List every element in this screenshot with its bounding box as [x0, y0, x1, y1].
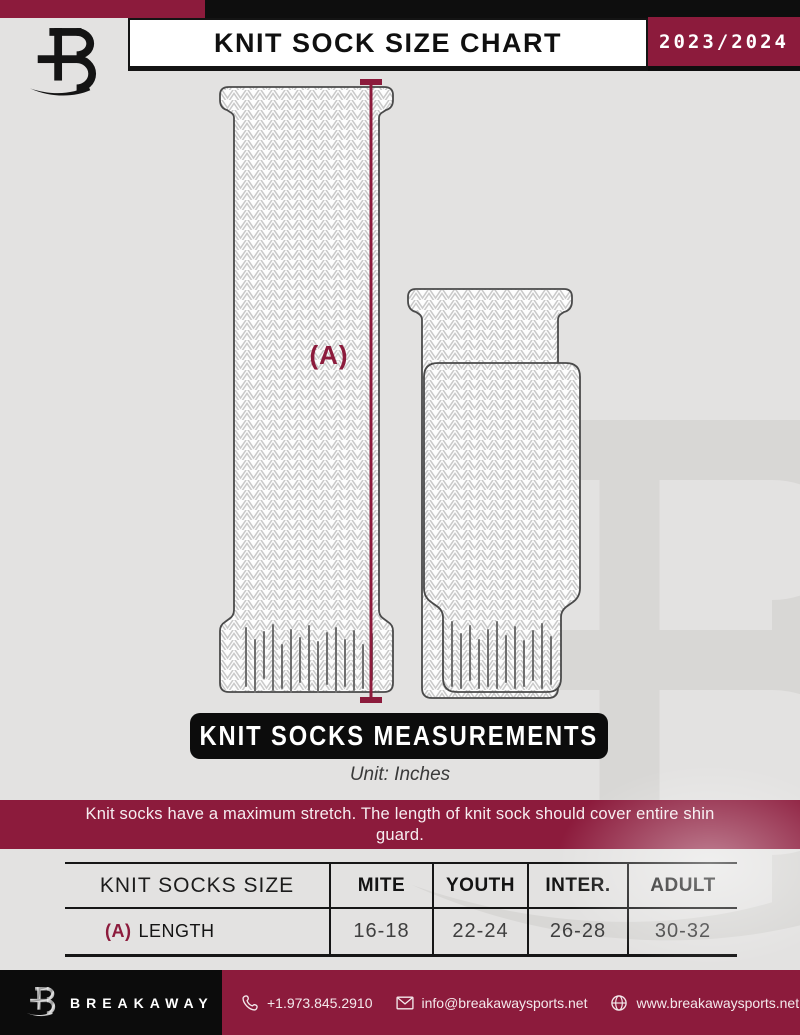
footer: BREAKAWAY +1.973.845.2910 info@breakaway…: [0, 970, 800, 1035]
table-header-adult: ADULT: [627, 864, 737, 909]
stretch-note-banner: Knit socks have a maximum stretch. The l…: [0, 800, 800, 849]
table-header-mite: MITE: [329, 864, 432, 909]
brand-name: BREAKAWAY: [70, 995, 214, 1011]
website-url: www.breakawaysports.net: [636, 995, 799, 1011]
breakaway-logo-icon: [26, 985, 56, 1021]
envelope-icon: [395, 993, 415, 1013]
sock-adult: [220, 87, 393, 692]
measure-name: LENGTH: [139, 921, 215, 942]
footer-brand: BREAKAWAY: [0, 970, 222, 1035]
measurements-banner: KNIT SOCKS MEASUREMENTS: [190, 713, 608, 759]
measure-key: (A): [105, 921, 132, 942]
phone-icon: [240, 993, 260, 1013]
size-chart-page: KNIT SOCK SIZE CHART 2023/2024: [0, 0, 800, 1035]
measure-label-a: (A): [309, 340, 348, 370]
table-header-size: KNIT SOCKS SIZE: [65, 864, 329, 909]
table-value-adult: 30-32: [627, 909, 737, 954]
sock-intermediate: [424, 363, 580, 692]
table-header-youth: YOUTH: [432, 864, 527, 909]
table-value-inter: 26-28: [527, 909, 627, 954]
measurements-banner-text: KNIT SOCKS MEASUREMENTS: [200, 720, 599, 752]
email-contact[interactable]: info@breakawaysports.net: [395, 993, 588, 1013]
footer-contacts: +1.973.845.2910 info@breakawaysports.net…: [222, 970, 800, 1035]
website-contact[interactable]: www.breakawaysports.net: [609, 993, 799, 1013]
size-table: KNIT SOCKS SIZE MITE YOUTH INTER. ADULT …: [65, 862, 737, 957]
table-row-label: (A) LENGTH: [65, 909, 329, 954]
unit-label: Unit: Inches: [0, 764, 800, 786]
email-address: info@breakawaysports.net: [422, 995, 588, 1011]
table-header-inter: INTER.: [527, 864, 627, 909]
table-value-youth: 22-24: [432, 909, 527, 954]
stretch-note-text: Knit socks have a maximum stretch. The l…: [80, 804, 720, 846]
phone-contact[interactable]: +1.973.845.2910: [240, 993, 373, 1013]
globe-icon: [609, 993, 629, 1013]
phone-number: +1.973.845.2910: [267, 995, 373, 1011]
table-value-mite: 16-18: [329, 909, 432, 954]
